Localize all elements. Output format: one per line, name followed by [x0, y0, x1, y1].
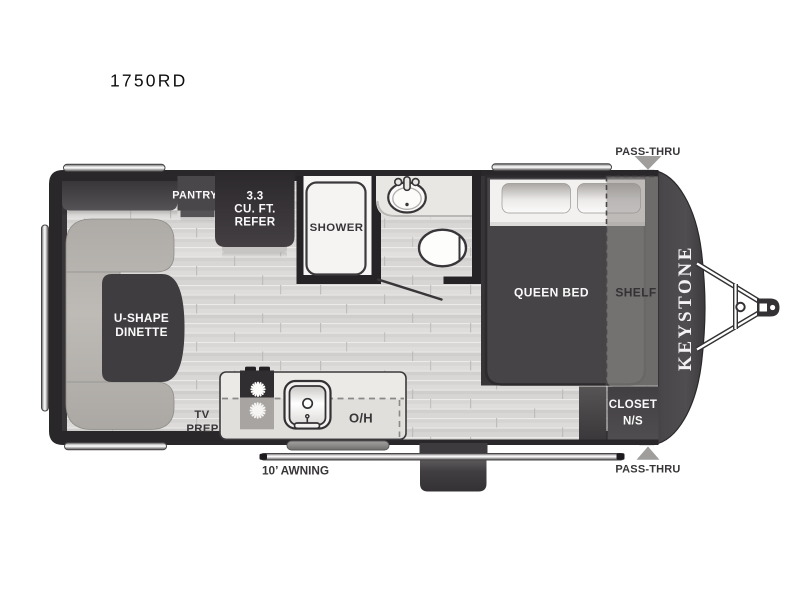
svg-text:SHELF: SHELF [615, 286, 656, 300]
svg-text:TV: TV [194, 409, 209, 421]
svg-text:PASS-THRU: PASS-THRU [615, 464, 680, 476]
svg-text:DINETTE: DINETTE [115, 325, 168, 339]
svg-text:CU. FT.: CU. FT. [234, 203, 275, 216]
svg-text:REFER: REFER [235, 216, 276, 229]
svg-text:10’ AWNING: 10’ AWNING [262, 464, 329, 478]
svg-text:O/H: O/H [349, 411, 373, 426]
svg-text:1750RD: 1750RD [110, 71, 187, 91]
svg-text:PANTRY: PANTRY [172, 190, 218, 202]
svg-text:U-SHAPE: U-SHAPE [114, 311, 169, 325]
svg-text:KEYSTONE: KEYSTONE [675, 245, 696, 371]
svg-text:3.3: 3.3 [246, 190, 263, 203]
svg-text:N/S: N/S [623, 416, 643, 428]
svg-text:PREP: PREP [186, 423, 218, 435]
svg-text:QUEEN BED: QUEEN BED [514, 286, 589, 300]
svg-text:CLOSET: CLOSET [609, 399, 657, 411]
svg-text:SHOWER: SHOWER [310, 222, 364, 234]
svg-text:PASS-THRU: PASS-THRU [615, 146, 680, 158]
